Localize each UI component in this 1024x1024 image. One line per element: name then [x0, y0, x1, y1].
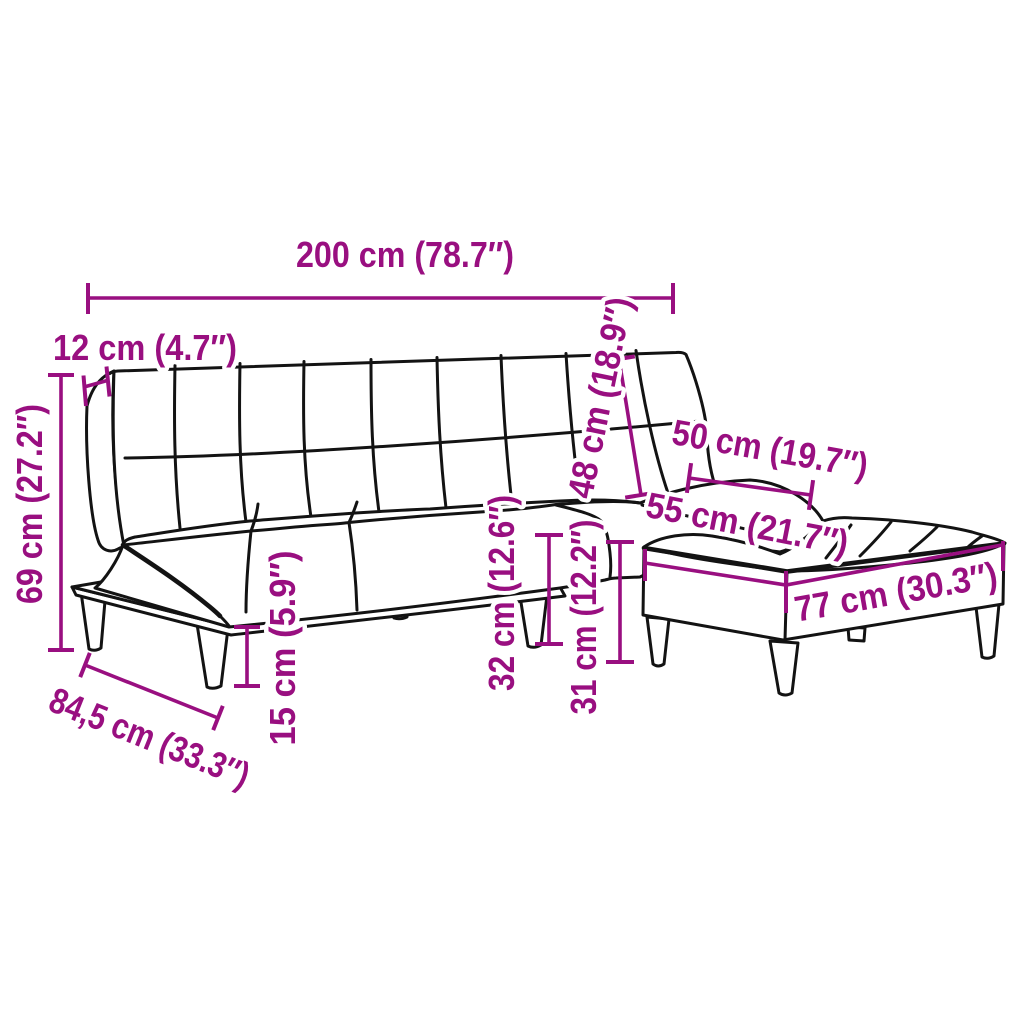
svg-text:200 cm (78.7″): 200 cm (78.7″)	[296, 234, 514, 275]
svg-text:12 cm (4.7″): 12 cm (4.7″)	[53, 327, 237, 368]
svg-text:69 cm (27.2″): 69 cm (27.2″)	[9, 404, 50, 604]
svg-text:15 cm (5.9″): 15 cm (5.9″)	[262, 551, 303, 746]
svg-text:31 cm (12.2″): 31 cm (12.2″)	[563, 520, 604, 715]
svg-text:32 cm (12.6″): 32 cm (12.6″)	[481, 495, 522, 691]
